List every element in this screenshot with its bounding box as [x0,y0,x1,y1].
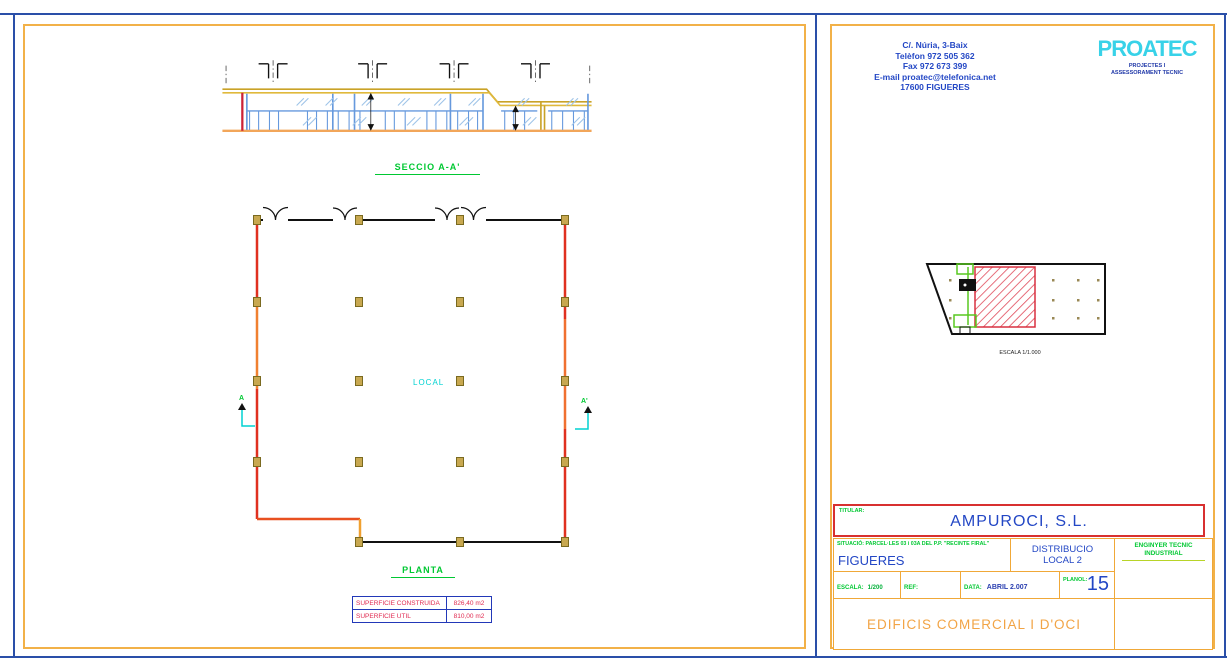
area-row-label: SUPERFICIE UTIL [353,610,447,622]
plan-title: PLANTA [391,565,455,578]
key-plan-scale-label: ESCALA 1/1.000 [999,350,1040,356]
frame-bottom-line [0,656,1227,658]
title-block: TITULAR: AMPUROCI, S.L. SITUACIÓ: PARCEL… [833,504,1214,650]
area-row-label: SUPERFICIE CONSTRUIDA [353,597,447,609]
section-column-symbols [259,64,550,78]
section-ceiling-lines [222,89,591,131]
engineer-empty-cell [1114,598,1213,650]
planol-number: 15 [1087,573,1109,596]
section-glazing-frame [247,94,588,130]
drawing-title-line2: LOCAL 2 [1011,555,1114,566]
drawing-title-line1: DISTRIBUCIO [1011,544,1114,555]
area-table: SUPERFICIE CONSTRUIDA 826,40 m2 SUPERFIC… [352,596,492,623]
svg-text:A: A [239,395,244,402]
logo-tagline: PROJECTES I ASSESSORAMENT TECNIC [1082,63,1212,77]
local2-hatched-area [975,267,1035,327]
engineer-line2: INDUSTRIAL [1115,550,1212,558]
company-email: E-mail proatec@telefonica.net [840,72,1030,83]
section-marker-a: A [238,395,255,426]
key-plan-core-elements [954,264,976,334]
key-plan-drawing: ESCALA 1/1.000 [902,255,1117,357]
logo-wordmark: PROATEC [1082,38,1212,60]
company-address-block: C/. Núria, 3-Baix Telèfon 972 505 362 Fa… [840,40,1030,93]
table-row: SUPERFICIE UTIL 810,00 m2 [353,609,491,622]
engineer-line1: ENGINYER TECNIC [1115,542,1212,550]
engineer-text: ENGINYER TECNIC INDUSTRIAL [1115,539,1212,557]
svg-text:A': A' [581,398,588,405]
data-value: ABRIL 2.007 [987,584,1028,591]
room-label: LOCAL [413,378,444,387]
section-drawing [217,60,597,160]
drawing-title-cell: DISTRIBUCIO LOCAL 2 [1010,538,1115,572]
section-title: SECCIO A-A' [375,162,480,175]
data-label: DATA: [964,585,982,591]
engineer-cell: ENGINYER TECNIC INDUSTRIAL [1114,538,1213,599]
escala-label: ESCALA: [837,585,864,591]
company-address-line: C/. Núria, 3-Baix [840,40,1030,51]
company-phone: Telèfon 972 505 362 [840,51,1030,62]
titular-label: TITULAR: [839,508,864,514]
ref-label: REF: [904,585,918,591]
section-marker-a-prime: A' [575,398,592,429]
floor-plan-drawing: LOCAL A A' [235,199,599,559]
data-cell: DATA:ABRIL 2.007 [960,571,1060,599]
drawing-sheet-right: C/. Núria, 3-Baix Telèfon 972 505 362 Fa… [830,24,1215,649]
titular-box: TITULAR: AMPUROCI, S.L. [833,504,1205,537]
area-row-value: 826,40 m2 [447,597,491,609]
project-title-text: EDIFICIS COMERCIAL I D'OCI [834,599,1114,632]
plan-columns [254,216,569,547]
logo-tagline-line2: ASSESSORAMENT TECNIC [1082,70,1212,77]
situacio-text: SITUACIÓ: PARCEL·LES 03 i 03A DEL P.P. "… [837,541,989,547]
drawing-sheet-left: SECCIO A-A' [23,24,806,649]
escala-value: 1/200 [868,585,883,591]
area-row-value: 810,00 m2 [447,610,491,622]
situacio-cell: SITUACIÓ: PARCEL·LES 03 i 03A DEL P.P. "… [833,538,1011,572]
planol-label: PLANOL: [1063,577,1087,583]
company-city: 17600 FIGUERES [840,82,1030,93]
project-title-cell: EDIFICIS COMERCIAL I D'OCI [833,598,1115,650]
drawing-title-text: DISTRIBUCIO LOCAL 2 [1011,539,1114,566]
ref-cell: REF: [900,571,961,599]
table-row: SUPERFICIE CONSTRUIDA 826,40 m2 [353,597,491,609]
escala-cell: ESCALA:1/200 [833,571,901,599]
plan-door-swings [263,208,486,221]
situacio-city: FIGUERES [838,553,904,568]
planol-cell: PLANOL: 15 [1059,571,1115,599]
company-logo: PROATEC PROJECTES I ASSESSORAMENT TECNIC [1082,38,1212,77]
titular-value: AMPUROCI, S.L. [835,506,1203,531]
logo-tagline-line1: PROJECTES I [1082,63,1212,70]
frame-left-line [13,13,15,658]
frame-right-line [1224,13,1226,658]
frame-top-line [0,13,1227,15]
sheet-divider-line [815,13,817,658]
company-fax: Fax 972 673 399 [840,61,1030,72]
engineer-underline [1122,560,1205,561]
